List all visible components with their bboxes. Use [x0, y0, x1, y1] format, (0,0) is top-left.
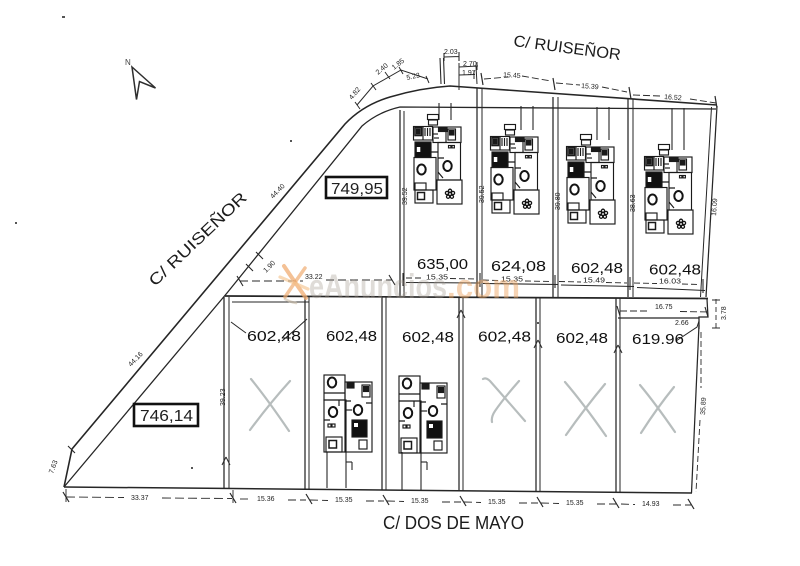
svg-text:15.45: 15.45: [503, 72, 521, 80]
svg-text:C/ DOS DE MAYO: C/ DOS DE MAYO: [383, 513, 524, 533]
svg-text:619.96: 619.96: [632, 331, 684, 348]
svg-text:16.52: 16.52: [664, 94, 682, 102]
svg-text:15.35: 15.35: [488, 499, 506, 506]
svg-text:N: N: [125, 58, 131, 67]
svg-text:38.63: 38.63: [630, 194, 637, 212]
svg-text:33.37: 33.37: [131, 495, 149, 502]
svg-text:602,48: 602,48: [247, 328, 301, 345]
svg-text:15.35: 15.35: [566, 500, 584, 507]
svg-text:15.35: 15.35: [335, 497, 353, 504]
svg-text:15.39: 15.39: [581, 83, 599, 91]
svg-text:602,48: 602,48: [571, 260, 623, 277]
svg-text:15.36: 15.36: [257, 496, 275, 503]
svg-text:15.49: 15.49: [583, 278, 605, 285]
svg-text:2.66: 2.66: [675, 320, 689, 327]
svg-text:39.52: 39.52: [402, 187, 409, 205]
svg-text:602,48: 602,48: [649, 262, 701, 279]
svg-text:2.03: 2.03: [444, 49, 458, 56]
svg-text:eAnuncios: eAnuncios: [309, 268, 447, 306]
svg-text:15.35: 15.35: [411, 498, 429, 505]
svg-text:39.23: 39.23: [220, 388, 227, 406]
svg-text:16.75: 16.75: [655, 304, 673, 311]
svg-text:16.09: 16.09: [711, 198, 719, 216]
svg-text:1 97: 1 97: [462, 70, 476, 77]
svg-text:.com: .com: [447, 268, 520, 306]
svg-text:39.52: 39.52: [479, 185, 486, 203]
svg-text:602,48: 602,48: [478, 329, 531, 346]
svg-text:14.93: 14.93: [642, 501, 660, 508]
svg-text:602,48: 602,48: [402, 329, 454, 346]
svg-text:16.03: 16.03: [659, 279, 681, 286]
svg-text:602,48: 602,48: [556, 330, 608, 347]
svg-text:749,95: 749,95: [331, 181, 383, 198]
svg-text:39.80: 39.80: [555, 192, 562, 210]
svg-text:35.89: 35.89: [700, 397, 708, 415]
svg-text:2 70: 2 70: [463, 61, 477, 68]
svg-text:746,14: 746,14: [140, 408, 193, 425]
svg-text:602,48: 602,48: [326, 328, 377, 345]
svg-text:3.78: 3.78: [721, 306, 728, 320]
